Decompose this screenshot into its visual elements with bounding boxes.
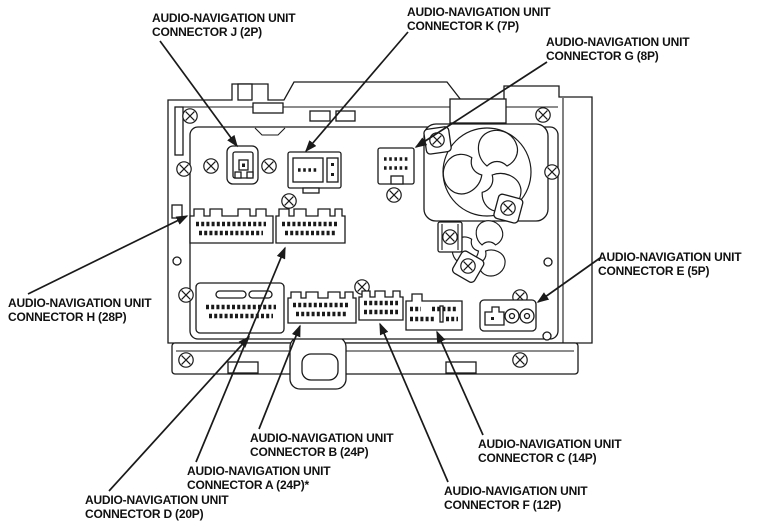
screw-icon [545,165,559,179]
connector-j-shape [227,146,258,184]
screw-icon [461,259,475,273]
label-line1: AUDIO-NAVIGATION UNIT [8,296,151,310]
label-connector-g: AUDIO-NAVIGATION UNIT CONNECTOR G (8P) [546,35,689,63]
bottom-band-step [228,362,258,373]
top-band-detail [253,103,283,113]
pilot-hole [543,332,551,340]
label-line2: CONNECTOR A (24P)* [187,478,330,492]
screw-icon [177,162,191,176]
screw-icon [501,201,515,215]
left-notch [172,205,182,218]
label-line1: AUDIO-NAVIGATION UNIT [407,5,550,19]
pilot-hole [173,257,181,265]
screw-icon [536,108,550,122]
label-line2: CONNECTOR G (8P) [546,49,689,63]
screw-icon [387,188,401,202]
connector-f-shape [359,291,403,320]
label-connector-d: AUDIO-NAVIGATION UNIT CONNECTOR D (20P) [85,493,228,521]
label-line2: CONNECTOR K (7P) [407,19,550,33]
left-strip [175,107,183,155]
label-line1: AUDIO-NAVIGATION UNIT [444,484,587,498]
screw-icon [282,194,296,208]
screw-icon [513,353,527,367]
label-connector-e: AUDIO-NAVIGATION UNIT CONNECTOR E (5P) [598,250,741,278]
label-connector-f: AUDIO-NAVIGATION UNIT CONNECTOR F (12P) [444,484,587,512]
label-line1: AUDIO-NAVIGATION UNIT [85,493,228,507]
label-line2: CONNECTOR C (14P) [478,451,621,465]
label-line1: AUDIO-NAVIGATION UNIT [478,437,621,451]
screw-icon [204,159,218,173]
label-line1: AUDIO-NAVIGATION UNIT [546,35,689,49]
connector-e-shape [480,300,536,331]
screw-icon [183,109,197,123]
screw-icon [262,159,276,173]
diagram-canvas: AUDIO-NAVIGATION UNIT CONNECTOR J (2P) A… [0,0,766,529]
label-line2: CONNECTOR E (5P) [598,264,741,278]
screw-icon [179,288,193,302]
connector-g-shape [378,148,414,184]
screw-icon [430,133,444,147]
screw-icon [179,353,193,367]
label-connector-b: AUDIO-NAVIGATION UNIT CONNECTOR B (24P) [250,431,393,459]
label-line2: CONNECTOR D (20P) [85,507,228,521]
label-connector-c: AUDIO-NAVIGATION UNIT CONNECTOR C (14P) [478,437,621,465]
top-tab-divider [238,84,252,100]
label-line2: CONNECTOR F (12P) [444,498,587,512]
top-band-detail [310,111,330,121]
label-connector-a: AUDIO-NAVIGATION UNIT CONNECTOR A (24P)* [187,464,330,492]
label-connector-j: AUDIO-NAVIGATION UNIT CONNECTOR J (2P) [152,11,295,39]
label-line2: CONNECTOR B (24P) [250,445,393,459]
screw-icon [443,230,457,244]
label-line1: AUDIO-NAVIGATION UNIT [187,464,330,478]
leader-connector-h [28,216,187,294]
label-line1: AUDIO-NAVIGATION UNIT [250,431,393,445]
label-line2: CONNECTOR H (28P) [8,310,151,324]
label-connector-k: AUDIO-NAVIGATION UNIT CONNECTOR K (7P) [407,5,550,33]
connector-d-shape [196,283,284,333]
label-connector-h: AUDIO-NAVIGATION UNIT CONNECTOR H (28P) [8,296,151,324]
pilot-hole [544,258,552,266]
label-line1: AUDIO-NAVIGATION UNIT [152,11,295,25]
connector-k-shape [288,152,341,193]
label-line1: AUDIO-NAVIGATION UNIT [598,250,741,264]
bracket-tab-slot [302,354,338,380]
label-line2: CONNECTOR J (2P) [152,25,295,39]
